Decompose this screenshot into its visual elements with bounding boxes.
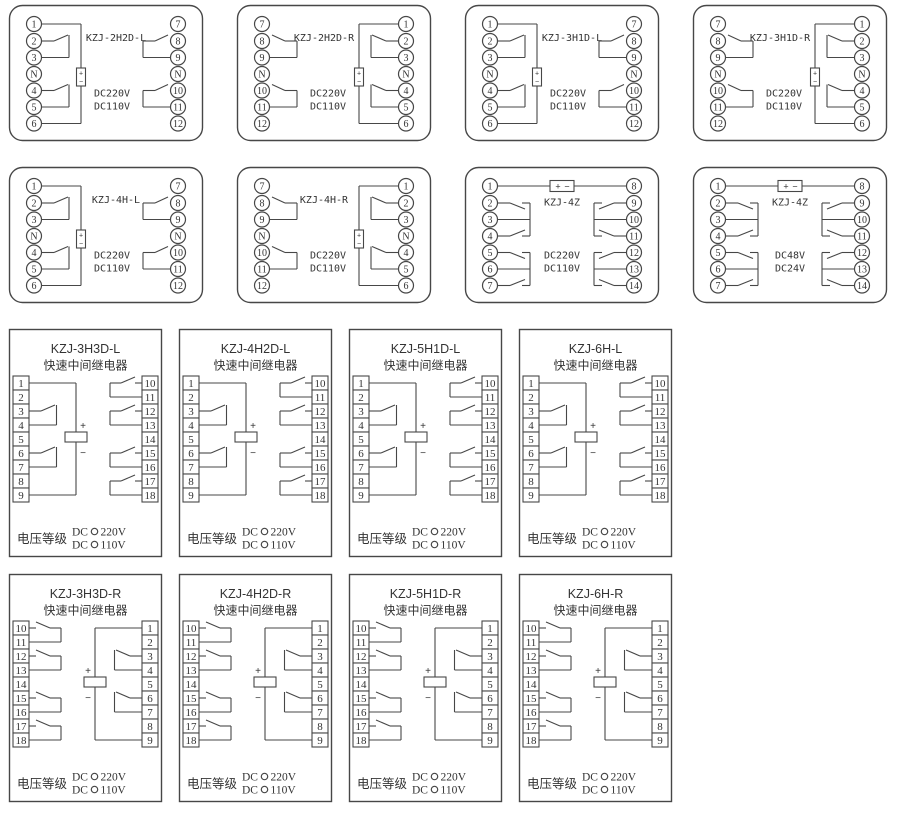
voltage-line-2: DC110V (550, 102, 586, 113)
terminal-label: 10 (173, 86, 183, 97)
voltage-dc-label: DC (412, 785, 428, 797)
contact-blade (738, 253, 753, 259)
terminal-label: 3 (404, 215, 409, 226)
coil (594, 677, 616, 687)
terminal-label: 9 (260, 53, 265, 64)
coil-minus: − (357, 241, 361, 248)
coil-minus: − (425, 693, 431, 704)
contact-blade (827, 280, 842, 286)
terminal-label: 12 (526, 651, 537, 663)
panel-title: KZJ-4H2D-R (220, 587, 292, 601)
terminal-label: 15 (485, 448, 497, 460)
panel-kzj-6h-r: KZJ-6H-R快速中间继电器1102113124135146157168179… (518, 573, 673, 803)
diagram-svg-kzj-6h-r: KZJ-6H-R快速中间继电器1102113124135146157168179… (518, 573, 673, 803)
coil-minus: − (85, 693, 91, 704)
diagram-svg-kzj-4z-48: 1829310411512613714+−KZJ-4ZDC48VDC24V (692, 166, 888, 304)
terminal-label: 4 (488, 86, 493, 97)
contact-blade (291, 447, 305, 453)
terminal-label: 6 (317, 693, 323, 705)
terminal-label: 1 (657, 623, 663, 635)
panel-title: KZJ-4Z (544, 198, 580, 209)
terminal-label: 18 (526, 735, 538, 747)
terminal-label: 11 (173, 265, 183, 276)
diagram-svg-kzj-3h1d-r: 172839NN410511612+−KZJ-3H1D-RDC220VDC110… (692, 4, 888, 142)
voltage-option-circle (261, 786, 267, 792)
contact-blade (728, 35, 741, 41)
voltage-dc-label: DC (582, 785, 598, 797)
terminal-label: 2 (32, 199, 37, 210)
contact-blade (631, 377, 645, 383)
terminal-label: 1 (716, 182, 721, 193)
terminal-label: 18 (16, 735, 28, 747)
terminal-label: 1 (147, 623, 153, 635)
voltage-line-1: DC220V (310, 251, 346, 262)
voltage-dc-label: DC (242, 785, 258, 797)
voltage-option-circle (431, 786, 437, 792)
terminal-label: 2 (528, 392, 534, 404)
terminal-label: 6 (528, 448, 534, 460)
terminal-label: 2 (716, 199, 721, 210)
voltage-line-1: DC220V (766, 89, 802, 100)
voltage-line-1: DC48V (775, 251, 805, 262)
voltage-dc-label: DC (242, 772, 258, 784)
contact-blade (599, 203, 614, 209)
panel-kzj-4h-l: 172839NN410511612+−KZJ-4H-LDC220VDC110V (8, 166, 204, 304)
terminal-label: 12 (186, 651, 197, 663)
panel-title: KZJ-4H2D-L (221, 342, 291, 356)
diagram-svg-kzj-4h-r: 172839NN410511612+−KZJ-4H-RDC220VDC110V (236, 166, 432, 304)
terminal-label: 4 (32, 86, 37, 97)
terminal-label: 2 (18, 392, 24, 404)
contact-blade (631, 405, 645, 411)
diagram-svg-kzj-4h-l: 172839NN410511612+−KZJ-4H-LDC220VDC110V (8, 166, 204, 304)
terminal-label: 6 (404, 119, 409, 130)
panel-subtitle: 快速中间继电器 (213, 603, 297, 618)
voltage-value: 110V (101, 540, 127, 552)
terminal-label: 4 (317, 665, 323, 677)
terminal-label: 1 (404, 182, 409, 193)
terminal-label: 9 (632, 53, 637, 64)
voltage-line-2: DC110V (766, 102, 802, 113)
terminal-label: 3 (657, 651, 663, 663)
panel-kzj-5h1d-l: KZJ-5H1D-L快速中间继电器11021131241351461571681… (348, 328, 503, 558)
terminal-label: N (174, 232, 181, 243)
terminal-label: 2 (188, 392, 194, 404)
terminal-label: 8 (176, 199, 181, 210)
terminal-label: 9 (260, 215, 265, 226)
voltage-line-2: DC110V (94, 264, 130, 275)
coil (254, 677, 276, 687)
terminal-label: 16 (526, 707, 538, 719)
terminal-label: 5 (487, 679, 493, 691)
terminal-label: 2 (488, 199, 493, 210)
terminal-label: 10 (655, 378, 667, 390)
terminal-label: 1 (32, 182, 37, 193)
panel-subtitle: 快速中间继电器 (553, 603, 637, 618)
terminal-label: 13 (526, 665, 538, 677)
panel-title: KZJ-5H1D-L (391, 342, 461, 356)
voltage-dc-label: DC (412, 772, 428, 784)
contact-blade (272, 85, 285, 91)
diagram-svg-kzj-3h3d-r: KZJ-3H3D-R快速中间继电器11021131241351461571681… (8, 573, 163, 803)
contact-blade (828, 35, 842, 41)
contact-blade (36, 692, 50, 698)
terminal-label: 13 (186, 665, 198, 677)
terminal-label: 3 (358, 406, 364, 418)
terminal-label: 1 (488, 20, 493, 31)
terminal-label: 8 (358, 476, 364, 488)
diagram-svg-kzj-6h-l: KZJ-6H-L快速中间继电器1102113124135146157168179… (518, 328, 673, 558)
terminal-label: 6 (404, 281, 409, 292)
terminal-label: 4 (657, 665, 663, 677)
terminal-label: 12 (145, 406, 156, 418)
terminal-label: 2 (317, 637, 323, 649)
terminal-label: 2 (488, 37, 493, 48)
terminal-label: 10 (857, 215, 867, 226)
terminal-label: 11 (356, 637, 367, 649)
contact-blade (121, 447, 135, 453)
terminal-label: 4 (32, 248, 37, 259)
contact-blade (546, 720, 560, 726)
terminal-label: 4 (488, 232, 493, 243)
contact-blade (456, 650, 470, 656)
voltage-dc-label: DC (242, 527, 258, 539)
voltage-option-circle (91, 541, 97, 547)
voltage-line-1: DC220V (94, 89, 130, 100)
terminal-label: 6 (147, 693, 153, 705)
terminal-label: 7 (358, 462, 364, 474)
voltage-option-circle (431, 541, 437, 547)
terminal-label: 5 (657, 679, 663, 691)
voltage-value: 110V (611, 540, 637, 552)
terminal-label: 7 (317, 707, 323, 719)
panel-kzj-3h1d-l: 172839NN410511612+−KZJ-3H1D-LDC220VDC110… (464, 4, 660, 142)
terminal-label: 8 (147, 721, 153, 733)
terminal-label: 13 (16, 665, 28, 677)
terminal-label: 4 (147, 665, 153, 677)
terminal-label: 14 (526, 679, 538, 691)
terminal-label: 13 (857, 265, 867, 276)
coil (65, 432, 87, 442)
contact-blade (372, 85, 386, 91)
voltage-line-2: DC110V (310, 102, 346, 113)
terminal-label: 9 (358, 490, 364, 502)
contact-blade (211, 405, 225, 411)
terminal-label: 9 (176, 53, 181, 64)
diagram-svg-kzj-4h2d-l: KZJ-4H2D-L快速中间继电器11021131241351461571681… (178, 328, 333, 558)
coil-minus: − (813, 79, 817, 86)
contact-blade (599, 253, 614, 259)
terminal-label: 13 (655, 420, 667, 432)
terminal-label: 9 (147, 735, 153, 747)
coil-plus: + (420, 421, 426, 432)
terminal-label: 11 (186, 637, 197, 649)
terminal-label: 9 (528, 490, 534, 502)
voltage-line-1: DC220V (544, 251, 580, 262)
contact-blade (456, 692, 470, 698)
panel-subtitle: 快速中间继电器 (43, 603, 127, 618)
contact-blade (372, 247, 386, 253)
terminal-label: 13 (629, 265, 639, 276)
voltage-class-label: 电压等级 (17, 776, 68, 791)
coil (778, 181, 802, 192)
relay-wiring-diagram-sheet: 172839NN410511612+−KZJ-2H2D-LDC220VDC110… (0, 0, 900, 814)
voltage-value: 110V (441, 785, 467, 797)
voltage-value: 220V (441, 772, 467, 784)
terminal-label: 10 (526, 623, 538, 635)
terminal-label: 10 (356, 623, 368, 635)
terminal-label: 7 (260, 20, 265, 31)
contact-blade (41, 447, 55, 453)
coil-plus: + (357, 233, 361, 240)
diagram-svg-kzj-4z-220: 1829310411512613714+−KZJ-4ZDC220VDC110V (464, 166, 660, 304)
contact-blade (461, 475, 475, 481)
terminal-label: 12 (485, 406, 496, 418)
contact-blade (376, 692, 390, 698)
terminal-label: 14 (315, 434, 327, 446)
contact-blade (54, 85, 68, 91)
diagram-svg-kzj-4h2d-r: KZJ-4H2D-R快速中间继电器11021131241351461571681… (178, 573, 333, 803)
coil-plus: + (80, 421, 86, 432)
contact-blade (827, 253, 842, 259)
contact-blade (461, 405, 475, 411)
coil-minus: − (255, 693, 261, 704)
terminal-label: 8 (18, 476, 24, 488)
contact-blade (546, 692, 560, 698)
coil-minus: − (250, 448, 256, 459)
contact-blade (206, 622, 220, 628)
terminal-label: 16 (655, 462, 667, 474)
panel-kzj-4z-48: 1829310411512613714+−KZJ-4ZDC48VDC24V (692, 166, 888, 304)
diagram-svg-kzj-3h3d-l: KZJ-3H3D-L快速中间继电器11021131241351461571681… (8, 328, 163, 558)
voltage-dc-label: DC (582, 527, 598, 539)
terminal-label: 5 (860, 103, 865, 114)
voltage-class-label: 电压等级 (527, 531, 578, 546)
panel-title: KZJ-2H2D-R (294, 33, 355, 44)
panel-kzj-4z-220: 1829310411512613714+−KZJ-4ZDC220VDC110V (464, 166, 660, 304)
terminal-label: 3 (18, 406, 24, 418)
terminal-label: 16 (145, 462, 157, 474)
terminal-label: 1 (317, 623, 323, 635)
contact-blade (41, 405, 55, 411)
terminal-label: 11 (655, 392, 666, 404)
terminal-label: 6 (657, 693, 663, 705)
terminal-label: 5 (147, 679, 153, 691)
contact-blade (376, 720, 390, 726)
terminal-label: 9 (18, 490, 24, 502)
voltage-value: 110V (271, 540, 297, 552)
terminal-label: N (858, 70, 865, 81)
panel-kzj-2h2d-l: 172839NN410511612+−KZJ-2H2D-LDC220VDC110… (8, 4, 204, 142)
terminal-label: 12 (315, 406, 326, 418)
voltage-line-2: DC110V (544, 264, 580, 275)
terminal-label: 4 (18, 420, 24, 432)
voltage-value: 220V (611, 527, 637, 539)
contact-blade (116, 650, 130, 656)
terminal-label: 7 (716, 20, 721, 31)
terminal-label: 5 (317, 679, 323, 691)
terminal-label: 10 (145, 378, 157, 390)
terminal-label: 13 (485, 420, 497, 432)
panel-kzj-6h-l: KZJ-6H-L快速中间继电器1102113124135146157168179… (518, 328, 673, 558)
contact-blade (272, 35, 285, 41)
terminal-label: 10 (629, 215, 639, 226)
voltage-value: 220V (271, 527, 297, 539)
terminal-label: 12 (713, 119, 723, 130)
panel-kzj-4h-r: 172839NN410511612+−KZJ-4H-RDC220VDC110V (236, 166, 432, 304)
terminal-label: 14 (629, 281, 639, 292)
coil-plus: + (250, 421, 256, 432)
terminal-label: 8 (528, 476, 534, 488)
terminal-label: 7 (657, 707, 663, 719)
contact-blade (738, 280, 753, 286)
voltage-dc-label: DC (582, 540, 598, 552)
contact-blade (631, 475, 645, 481)
voltage-option-circle (431, 773, 437, 779)
terminal-label: 3 (860, 53, 865, 64)
terminal-label: 3 (32, 53, 37, 64)
terminal-label: 2 (404, 37, 409, 48)
terminal-label: 10 (173, 248, 183, 259)
terminal-label: 17 (526, 721, 538, 733)
voltage-option-circle (91, 528, 97, 534)
contact-blade (54, 35, 68, 41)
terminal-label: N (402, 70, 409, 81)
voltage-option-circle (261, 541, 267, 547)
terminal-label: 5 (32, 265, 37, 276)
terminal-label: 3 (488, 215, 493, 226)
voltage-value: 110V (611, 785, 637, 797)
coil-minus: − (590, 448, 596, 459)
voltage-value: 220V (611, 772, 637, 784)
contact-blade (546, 622, 560, 628)
panel-title: KZJ-2H2D-L (86, 33, 146, 44)
voltage-option-circle (261, 773, 267, 779)
terminal-label: 2 (657, 637, 663, 649)
voltage-value: 110V (271, 785, 297, 797)
terminal-label: 5 (716, 248, 721, 259)
contact-blade (155, 247, 168, 253)
voltage-option-circle (91, 786, 97, 792)
terminal-label: N (30, 70, 37, 81)
terminal-label: 4 (860, 86, 865, 97)
terminal-label: 4 (188, 420, 194, 432)
terminal-label: 3 (528, 406, 534, 418)
terminal-label: N (630, 70, 637, 81)
voltage-option-circle (91, 773, 97, 779)
terminal-label: 10 (186, 623, 198, 635)
terminal-label: 12 (857, 248, 867, 259)
panel-kzj-5h1d-r: KZJ-5H1D-R快速中间继电器11021131241351461571681… (348, 573, 503, 803)
contact-blade (121, 377, 135, 383)
terminal-label: 15 (356, 693, 368, 705)
coil-plus: + (79, 71, 83, 78)
terminal-label: 1 (18, 378, 24, 390)
contact-blade (510, 230, 525, 236)
voltage-dc-label: DC (72, 527, 88, 539)
terminal-label: 2 (487, 637, 493, 649)
terminal-label: 5 (488, 248, 493, 259)
terminal-label: 18 (356, 735, 368, 747)
contact-blade (728, 85, 741, 91)
terminal-label: 2 (358, 392, 364, 404)
terminal-label: 8 (487, 721, 493, 733)
voltage-class-label: 电压等级 (357, 776, 408, 791)
coil (235, 432, 257, 442)
panel-title: KZJ-4H-L (92, 195, 140, 206)
terminal-label: 8 (260, 199, 265, 210)
terminal-label: 16 (16, 707, 28, 719)
voltage-option-circle (601, 786, 607, 792)
contact-blade (121, 475, 135, 481)
terminal-label: 2 (147, 637, 153, 649)
terminal-label: 7 (176, 20, 181, 31)
terminal-label: N (174, 70, 181, 81)
diagram-svg-kzj-3h1d-l: 172839NN410511612+−KZJ-3H1D-LDC220VDC110… (464, 4, 660, 142)
terminal-label: 5 (528, 434, 534, 446)
terminal-label: 12 (173, 119, 183, 130)
terminal-label: 1 (404, 20, 409, 31)
terminal-label: 9 (487, 735, 493, 747)
terminal-label: 3 (32, 215, 37, 226)
voltage-class-label: 电压等级 (187, 531, 238, 546)
terminal-label: 6 (488, 265, 493, 276)
terminal-label: 4 (716, 232, 721, 243)
terminal-label: 10 (485, 378, 497, 390)
panel-subtitle: 快速中间继电器 (383, 358, 467, 373)
terminal-label: N (486, 70, 493, 81)
panel-title: KZJ-6H-L (569, 342, 623, 356)
terminal-label: 16 (186, 707, 198, 719)
terminal-label: 8 (260, 37, 265, 48)
terminal-label: 16 (315, 462, 327, 474)
coil-plus: + (425, 666, 431, 677)
voltage-value: 220V (101, 772, 127, 784)
coil-plus: + (555, 182, 560, 192)
terminal-label: 13 (145, 420, 157, 432)
diagram-svg-kzj-5h1d-l: KZJ-5H1D-L快速中间继电器11021131241351461571681… (348, 328, 503, 558)
terminal-label: 18 (315, 490, 327, 502)
panel-kzj-4h2d-l: KZJ-4H2D-L快速中间继电器11021131241351461571681… (178, 328, 333, 558)
voltage-option-circle (601, 541, 607, 547)
contact-blade (827, 203, 842, 209)
terminal-label: 12 (655, 406, 666, 418)
terminal-label: 17 (356, 721, 368, 733)
terminal-label: 1 (528, 378, 534, 390)
terminal-label: 3 (716, 215, 721, 226)
terminal-label: 11 (629, 232, 639, 243)
terminal-label: 8 (657, 721, 663, 733)
contact-blade (738, 203, 753, 209)
terminal-label: 5 (188, 434, 194, 446)
panel-title: KZJ-3H1D-R (750, 33, 811, 44)
terminal-label: 8 (176, 37, 181, 48)
terminal-label: 7 (18, 462, 24, 474)
panel-title: KZJ-4H-R (300, 195, 349, 206)
terminal-label: 5 (18, 434, 24, 446)
coil-plus: + (255, 666, 261, 677)
voltage-line-2: DC24V (775, 264, 805, 275)
coil-plus: + (813, 71, 817, 78)
terminal-label: 7 (716, 281, 721, 292)
terminal-label: 12 (257, 281, 267, 292)
terminal-label: 5 (32, 103, 37, 114)
panel-title: KZJ-4Z (772, 198, 808, 209)
terminal-label: 17 (485, 476, 497, 488)
terminal-label: 18 (186, 735, 198, 747)
terminal-label: 6 (188, 448, 194, 460)
terminal-label: 8 (716, 37, 721, 48)
